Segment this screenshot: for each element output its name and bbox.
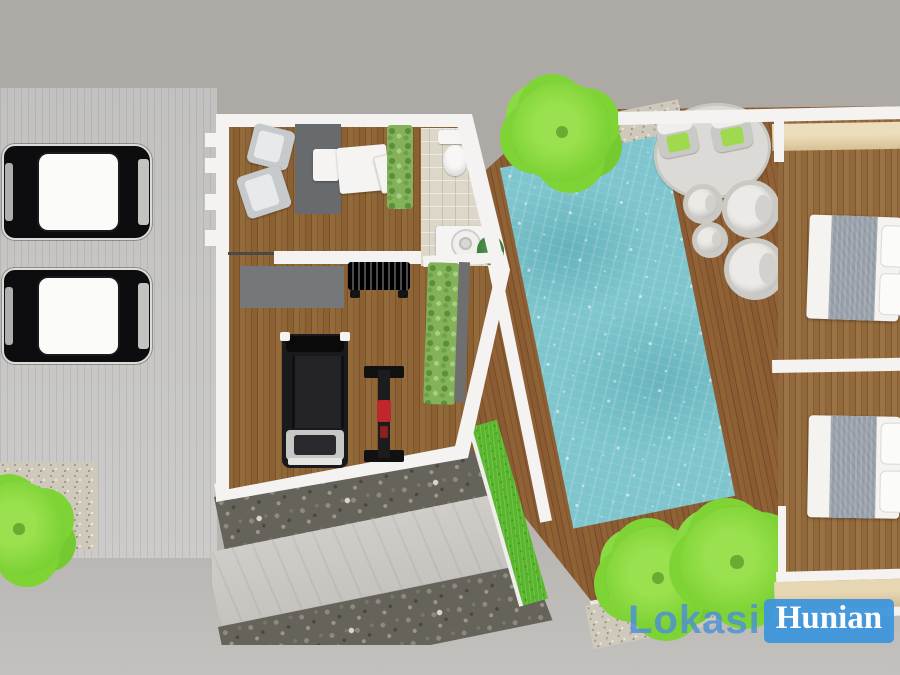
bed-2: [807, 415, 900, 519]
bedroom-wall-west-bottom: [778, 506, 786, 582]
treadmill-foot-bar: [288, 458, 342, 465]
window-notch-2: [205, 158, 217, 173]
treadmill-belt: [292, 356, 344, 428]
bed-1-pillow-b: [878, 273, 900, 316]
treadmill-handle-right: [340, 332, 350, 341]
car-2: [2, 268, 152, 364]
side-table: [313, 149, 339, 181]
window-notch-4: [205, 230, 217, 246]
watermark: Lokasi Hunian: [628, 598, 894, 643]
car-1-roof: [39, 154, 118, 229]
dumbbell-rack: [348, 262, 410, 290]
weight-machine: [364, 366, 404, 462]
car-2-front-bumper: [138, 283, 148, 349]
palm-tree-poolside: [512, 82, 612, 182]
floorplan-rendering: Lokasi Hunian: [0, 0, 900, 675]
car-2-roof: [39, 278, 118, 353]
pod-seat-small-1: [683, 184, 723, 224]
weight-machine-pad: [380, 426, 388, 438]
bed-1-pillow-a: [880, 225, 900, 268]
gym-mat: [240, 266, 344, 308]
watermark-text-lokasi: Lokasi: [628, 598, 761, 643]
window-notch-1: [205, 133, 217, 147]
lounge-chair-2-cushion: [720, 126, 745, 146]
office-planter-hedge: [387, 125, 413, 209]
lounge-chair-1-cushion: [666, 132, 691, 152]
bedroom-wall-west-top: [774, 112, 784, 162]
treadmill: [282, 334, 348, 468]
bed-1: [806, 214, 900, 321]
bed-1-blanket: [828, 215, 878, 321]
bed-2-blanket: [829, 416, 877, 519]
pod-seat-large-2: [724, 238, 786, 300]
bed-2-pillow-b: [879, 470, 900, 512]
car-1-front-bumper: [138, 159, 148, 225]
pod-seat-large-1: [722, 180, 780, 238]
treadmill-handle-left: [280, 332, 290, 341]
bedroom-divider-wall: [772, 358, 900, 373]
divider-line: [228, 252, 278, 255]
treadmill-motor: [294, 435, 336, 455]
weight-machine-seat: [377, 400, 391, 422]
wardrobe-band-top: [772, 122, 900, 151]
bed-2-pillow-a: [880, 422, 900, 464]
pod-seat-small-2: [692, 222, 728, 258]
watermark-text-hunian: Hunian: [764, 599, 894, 643]
window-notch-3: [205, 194, 217, 210]
treadmill-console: [286, 336, 344, 352]
dumbbell-rack-leg-left: [350, 290, 360, 298]
car-2-rear-bumper: [5, 287, 12, 346]
dumbbell-rack-leg-right: [398, 290, 408, 298]
car-1: [2, 144, 152, 240]
car-1-rear-bumper: [5, 163, 12, 222]
